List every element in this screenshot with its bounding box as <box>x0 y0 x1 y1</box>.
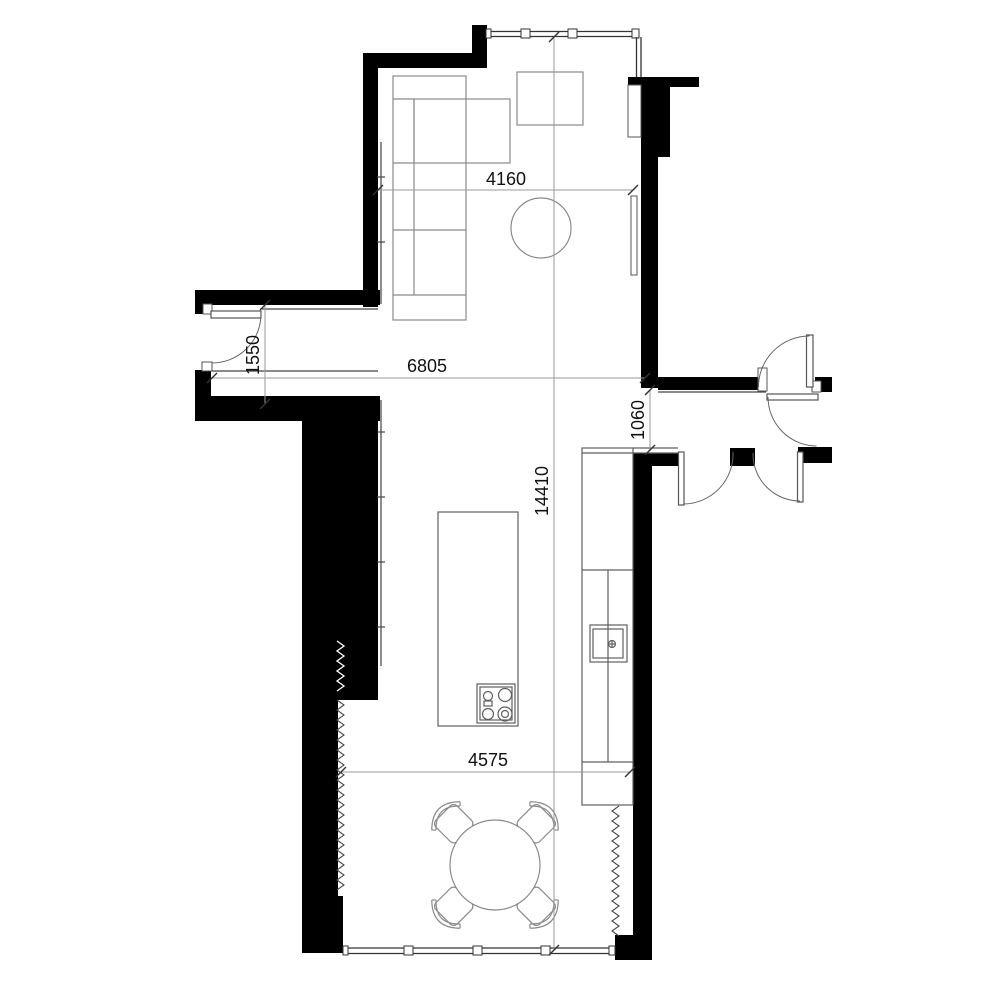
window-mullion <box>568 29 577 38</box>
dimension-label: 14410 <box>532 466 552 516</box>
interior-door-right <box>753 452 803 502</box>
burner <box>502 711 509 718</box>
window-end-cap <box>632 29 639 38</box>
door-leaf <box>767 394 818 400</box>
dimension-label: 6805 <box>407 356 447 376</box>
wall-segment <box>641 157 658 388</box>
window-mullion <box>521 29 530 38</box>
dimension-label: 4160 <box>486 169 526 189</box>
cooktop <box>477 684 515 723</box>
dimension-label: 1550 <box>243 335 263 375</box>
windows <box>343 29 641 955</box>
insulation-zigzag-icon <box>337 700 344 890</box>
wall-segment <box>633 453 652 960</box>
floor-plan-drawing: 4160 6805 4575 1550 1060 14410 <box>0 0 1000 1000</box>
kitchen-island <box>438 512 518 726</box>
floor-plan-canvas: 4160 6805 4575 1550 1060 14410 <box>0 0 1000 1000</box>
burner <box>499 689 512 702</box>
burner <box>498 707 512 721</box>
wall-niche <box>628 85 641 137</box>
chair-back-end <box>458 802 462 806</box>
cooktop-frame <box>480 687 512 720</box>
burner <box>484 692 493 701</box>
wall-segment <box>615 935 652 960</box>
window-end-cap <box>343 946 348 955</box>
coffee-table <box>511 198 571 258</box>
wall-segment <box>633 453 680 466</box>
door-leaf <box>807 335 814 387</box>
door-jamb <box>202 362 212 371</box>
wall-segment <box>195 290 380 305</box>
door-leaf <box>798 452 804 502</box>
chair-back <box>425 900 460 935</box>
door-swing-arc <box>753 453 800 501</box>
wall-segment <box>658 377 758 390</box>
chair-back-end <box>458 924 462 928</box>
door-leaf <box>211 311 261 318</box>
chair-back-end <box>554 828 558 832</box>
wall-segment <box>363 53 378 307</box>
wall-segment <box>363 53 487 68</box>
chair-back-end <box>528 924 532 928</box>
interior-door-corridor <box>767 394 818 446</box>
island-top <box>438 512 518 726</box>
chair-back-end <box>432 828 436 832</box>
wall-segment <box>641 77 670 157</box>
radiator <box>631 196 637 275</box>
burner <box>483 709 494 720</box>
dimension-label: 4575 <box>468 750 508 770</box>
dimensions: 4160 6805 4575 1550 1060 14410 <box>207 32 655 955</box>
sofa-body <box>393 76 466 320</box>
walls <box>195 25 832 960</box>
door-swing-arc <box>768 397 817 446</box>
corner-sofa <box>393 76 510 320</box>
dimension-label: 1060 <box>628 400 648 440</box>
wall-segment <box>302 896 343 953</box>
cooktop-control <box>484 701 492 706</box>
door-leaf <box>679 452 685 505</box>
dining-set <box>425 795 566 936</box>
wall-segment <box>302 700 338 896</box>
chair-back <box>530 900 565 935</box>
sofa-chaise <box>414 99 510 163</box>
wall-segment <box>302 400 378 700</box>
door-swing-arc <box>684 452 733 504</box>
window-end-cap <box>486 29 491 38</box>
chair-back-end <box>432 898 436 902</box>
chair-back <box>425 795 460 830</box>
window-mullion <box>473 946 482 955</box>
kitchen-counter <box>582 448 678 805</box>
window-mullion <box>404 946 413 955</box>
chair-back-end <box>528 802 532 806</box>
chair-back <box>530 795 565 830</box>
chair-back-end <box>554 898 558 902</box>
window-mullion <box>541 946 550 955</box>
side-table <box>517 72 583 125</box>
dining-table <box>450 820 540 910</box>
wall-segment <box>730 448 755 466</box>
interior-door-left <box>679 452 734 505</box>
window-end-cap <box>609 946 615 955</box>
insulation-zigzag-icon <box>612 806 619 936</box>
